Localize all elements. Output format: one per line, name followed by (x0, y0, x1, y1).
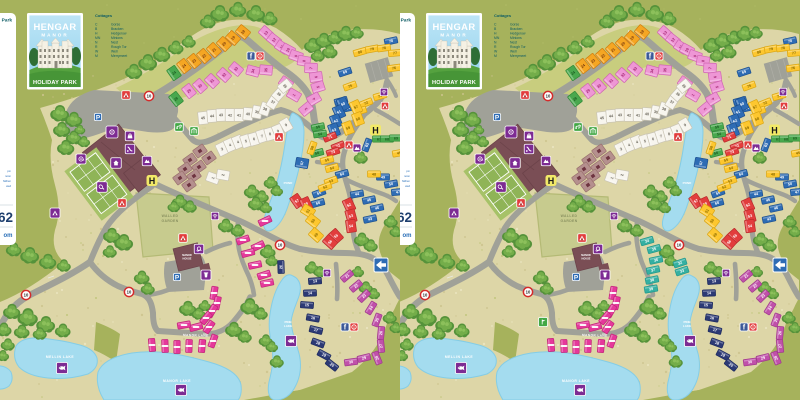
svg-text:36: 36 (654, 258, 659, 263)
svg-text:38: 38 (650, 278, 655, 283)
svg-text:37: 37 (651, 268, 656, 273)
svg-text:32: 32 (279, 265, 283, 269)
svg-text:39: 39 (649, 287, 654, 292)
